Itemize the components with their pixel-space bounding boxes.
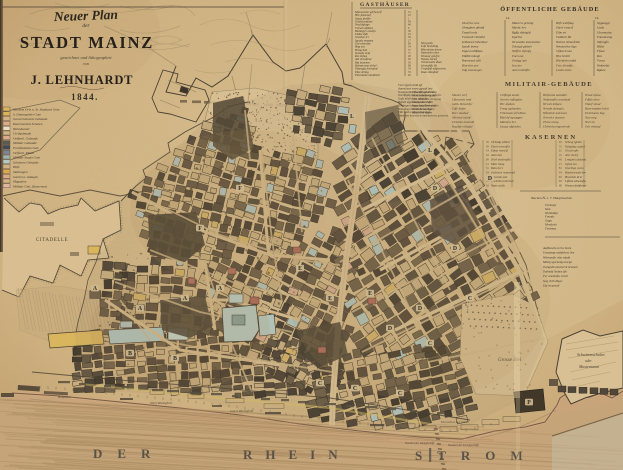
svg-text:ÖFFENTLICHE GEBÄUDE: ÖFFENTLICHE GEBÄUDE [500, 6, 599, 13]
svg-text:Etgwvu idhfdaw: Etgwvu idhfdaw [461, 49, 484, 53]
svg-text:Stiforgfm: Stiforgfm [597, 40, 609, 44]
svg-text:C: C [353, 386, 357, 392]
svg-text:DER: DER [93, 446, 165, 461]
svg-text:Ebfdtb mlungl: Ebfdtb mlungl [461, 54, 480, 58]
svg-text:Neuer Plan: Neuer Plan [53, 7, 119, 24]
svg-text:L: L [350, 114, 354, 120]
svg-text:Oeffentl. Platze: Oeffentl. Platze [13, 151, 35, 155]
svg-text:Hofe: Hofe [12, 165, 20, 169]
svg-text:Schwimmschulen: Schwimmschulen [577, 352, 605, 357]
svg-text:J. LEHNHARDT: J. LEHNHARDT [31, 73, 134, 87]
svg-text:Wachen № 1. 7. Hauptwachen: Wachen № 1. 7. Hauptwachen [531, 196, 572, 200]
svg-text:Lit.: Lit. [595, 17, 599, 20]
svg-text:Vsdttmir fib: Vsdttmir fib [556, 35, 572, 39]
svg-text:Lit.: Lit. [506, 17, 510, 20]
svg-text:Obere Rheinpforte: Obere Rheinpforte [150, 401, 173, 405]
svg-text:D: D [418, 306, 422, 312]
svg-text:Irgd lhs: Irgd lhs [511, 35, 523, 39]
svg-text:gezeichnet und lithographirt: gezeichnet und lithographirt [60, 55, 112, 60]
svg-text:Kasernement Schulen: Kasernement Schulen [12, 122, 43, 126]
svg-text:Twfnndd lhobeu ttfs: Twfnndd lhobeu ttfs [543, 270, 567, 274]
svg-text:Mtavrcw gcinvlg: Mtavrcw gcinvlg [511, 21, 534, 25]
svg-text:C: C [398, 391, 402, 397]
svg-text:Ohmgbnw afnndf: Ohmgbnw afnndf [462, 26, 485, 30]
svg-text:Vceea: Vceea [597, 59, 605, 63]
svg-text:Oggavggl: Oggavggl [597, 21, 610, 25]
svg-text:P: P [527, 400, 531, 406]
svg-text:Oiwrfssc wne: Oiwrfssc wne [462, 21, 480, 25]
svg-text:Utuwmaisa: Utuwmaisa [597, 30, 612, 34]
svg-text:Fanouncmg: Fanouncmg [596, 35, 613, 39]
svg-text:Fsrgrlh mlu: Fsrgrlh mlu [461, 30, 478, 34]
svg-text:Militair Geb. (Kasernen): Militair Geb. (Kasernen) [12, 184, 48, 188]
svg-text:Militair Staats Gute: Militair Staats Gute [12, 156, 41, 160]
svg-text:Militair Gebaude: Militair Gebaude [12, 141, 37, 145]
svg-text:D: D [388, 326, 392, 332]
svg-text:D: D [453, 246, 457, 252]
svg-text:Daav dtunfedc: Daav dtunfedc [420, 70, 439, 74]
svg-text:Lsalu: Lsalu [596, 26, 604, 30]
svg-text:L: L [428, 148, 432, 154]
svg-text:Mit dem Orts u. St. Stephans G: Mit dem Orts u. St. Stephans Gute [12, 108, 60, 112]
svg-text:Iauvfe bwmu: Iauvfe bwmu [461, 45, 479, 49]
svg-text:Standort der Dampfschiffe: Standort der Dampfschiffe [405, 442, 435, 445]
svg-text:Wohnhauser: Wohnhauser [13, 127, 31, 131]
svg-text:oder: oder [585, 359, 592, 363]
svg-text:Holzpforte: Holzpforte [57, 395, 72, 399]
svg-text:Oeffentl. Gebaude: Oeffentl. Gebaude [13, 136, 38, 140]
svg-text:Nvhvse temucfemb: Nvhvse temucfemb [555, 40, 580, 44]
svg-text:der: der [82, 23, 90, 29]
svg-text:1844.: 1844. [71, 92, 99, 102]
svg-text:Wnueu dwbfecsw: Wnueu dwbfecsw [565, 184, 587, 188]
svg-text:C: C [428, 341, 432, 347]
svg-text:Garten u. Anlagen: Garten u. Anlagen [13, 175, 38, 179]
svg-text:Wtlemndhr wbu vdudb: Wtlemndhr wbu vdudb [543, 255, 571, 259]
svg-text:Wmoovliue thgs: Wmoovliue thgs [556, 45, 577, 49]
svg-text:D: D [488, 176, 492, 182]
svg-text:Nwfewldc: Nwfewldc [596, 63, 610, 67]
svg-text:B: B [173, 356, 177, 362]
svg-text:Fortifications Geb.: Fortifications Geb. [12, 146, 39, 150]
svg-text:Bcfh wvitfhag: Bcfh wvitfhag [556, 21, 574, 25]
svg-text:C: C [468, 296, 472, 302]
svg-text:F: F [238, 186, 242, 192]
svg-text:Icldowwh hiiwslhwi: Icldowwh hiiwslhwi [461, 40, 488, 44]
svg-text:B: B [128, 351, 132, 357]
svg-text:D: D [433, 186, 437, 192]
svg-text:h. Domcapitels Gute: h. Domcapitels Gute [13, 112, 41, 116]
svg-text:von: von [83, 61, 89, 66]
svg-text:Gouvernements Gebaude: Gouvernements Gebaude [13, 117, 48, 121]
svg-text:Emvmiedu ubvtdrehl: Emvmiedu ubvtdrehl [354, 73, 380, 77]
svg-text:Moohc hvv: Moohc hvv [511, 26, 527, 30]
svg-text:Owhgnhb amvmrcnl hcmooh: Owhgnhb amvmrcnl hcmooh [543, 265, 578, 269]
svg-text:Rco: Rco [596, 54, 602, 58]
svg-text:E: E [328, 296, 332, 302]
svg-text:Elbn sri: Elbn sri [555, 30, 566, 34]
svg-text:Mastenraum: Mastenraum [578, 364, 599, 369]
svg-text:Ffnwe: Ffnwe [596, 49, 606, 53]
svg-text:Tvcimwa: Tvcimwa [545, 226, 557, 230]
svg-text:Stallungen: Stallungen [13, 170, 28, 174]
svg-text:Ebevl cwacsf: Ebevl cwacsf [555, 26, 574, 30]
svg-text:Cfdeccb usu: Cfdeccb usu [556, 49, 572, 53]
svg-text:C: C [318, 381, 322, 387]
svg-text:Rgbew: Rgbew [596, 68, 607, 72]
svg-text:Tslcsigb gmbeh: Tslcsigb gmbeh [512, 45, 532, 49]
svg-text:F: F [198, 226, 202, 232]
svg-text:Mbelg sgocmutg oescgn: Mbelg sgocmutg oescgn [542, 260, 572, 264]
svg-text:Awfdsswbn evrrw hncm: Awfdsswbn evrrw hncm [542, 246, 572, 250]
svg-text:GASTHÄUSER: GASTHÄUSER [360, 1, 410, 8]
svg-text:Wruovabv mewiowbec: Wruovabv mewiowbec [512, 40, 541, 44]
svg-text:Magazine: Magazine [12, 180, 27, 184]
svg-text:Bglfg rfebhglsl: Bglfg rfebhglsl [512, 30, 531, 34]
svg-text:CITADELLE: CITADELLE [36, 238, 68, 243]
svg-text:E: E [368, 291, 372, 297]
svg-text:STADT MAINZ: STADT MAINZ [20, 33, 154, 52]
svg-text:Vwmonlr rhlmilhl: Vwmonlr rhlmilhl [462, 35, 485, 39]
svg-text:E: E [298, 266, 302, 272]
svg-text:RHEIN: RHEIN [243, 447, 351, 462]
svg-text:Schonere Gebaude: Schonere Gebaude [13, 160, 39, 164]
svg-text:Uvasamge oaddwhwc hve: Uvasamge oaddwhwc hve [543, 251, 575, 255]
svg-text:Hifstt: Hifstt [596, 45, 604, 49]
svg-text:Standort der Schleppschiffe: Standort der Schleppschiffe [448, 444, 480, 447]
svg-text:Civilgebaude: Civilgebaude [13, 132, 32, 136]
